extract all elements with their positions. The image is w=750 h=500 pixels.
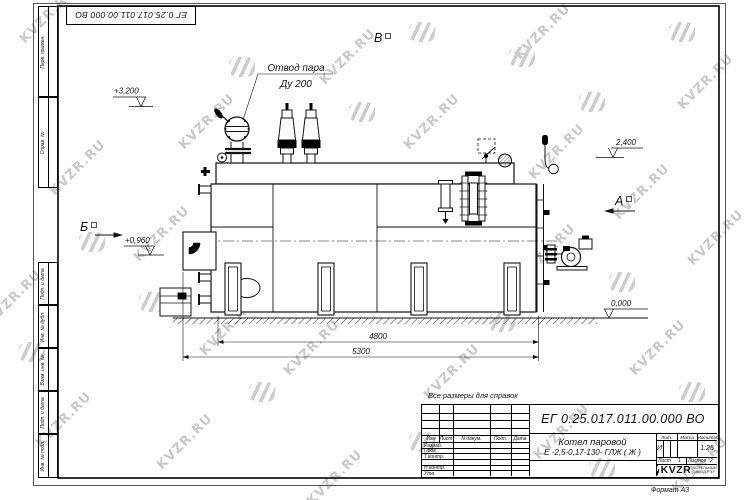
elev-0000-label: 0,000 [611, 299, 632, 308]
product-name-cell: Котел паровой Е -2,5-0,17-130- ГЛЖ ( Ж ) [529, 433, 656, 476]
margin-label: Подп. и дата [40, 268, 46, 299]
view-a-label: А [614, 194, 623, 208]
product-name-line2: Е -2,5-0,17-130- ГЛЖ ( Ж ) [529, 448, 656, 457]
elev-3200-label: +3,200 [114, 87, 139, 96]
margin-block-podp-data-2: Подп. и дата [38, 391, 58, 434]
top-doc-stamp-text: ЕГ 0.25.017.011.00.000 ВО [67, 7, 195, 23]
safety-valves [278, 103, 321, 163]
mass-label: Масса [677, 435, 697, 440]
margin-label: Взам. инв. № [40, 354, 46, 385]
top-doc-stamp: ЕГ 0.25.017.011.00.000 ВО [66, 6, 196, 25]
margin-label: Инв. № подл. [40, 440, 46, 471]
spring-logo-icon [656, 465, 659, 475]
rev-col-ndokum: N докум. [453, 436, 490, 442]
elev-2400-label: 2,400 [615, 138, 637, 147]
view-v-label: В [374, 31, 382, 45]
view-b-label: Б [80, 220, 88, 234]
scale-value: 1:25 [697, 445, 717, 452]
scale-label: Масштаб [697, 435, 717, 440]
elev-0960-label: +0,960 [125, 236, 150, 245]
ground-line [173, 318, 648, 324]
margin-label: Подп. и дата [40, 397, 46, 428]
margin-block-inv-podl: Инв. № подл. [38, 434, 58, 478]
company-subtitle-line2: ЗАВОД РЭУ [693, 470, 717, 474]
drawing-sheet: KVZR.RUKVZR.RUKVZR.RUKVZR.RUKVZR.RUKVZR.… [0, 0, 750, 500]
ladder-and-feed-pump [537, 184, 592, 312]
dim-5300-label: 5300 [352, 347, 370, 356]
margin-label: Перв. примен. [40, 35, 46, 68]
rev-col-izm: Изм [423, 436, 439, 442]
margin-label: Справ. № [40, 131, 46, 154]
rev-col-podp: Подп. [490, 436, 511, 442]
title-block: Изм Лист N докум. Подп. Дата Разраб. Про… [421, 404, 719, 478]
margin-label: Инв. № дубл. [40, 311, 46, 342]
margin-block-vzam-inv: Взам. инв. № [38, 348, 58, 391]
burner-unit [160, 167, 216, 316]
steam-outlet-valve [213, 108, 251, 163]
margin-block-perv-primen: Перв. примен. [38, 6, 58, 97]
steam-callout-line2: Ду 200 [279, 79, 312, 90]
margin-block-inv-dubl: Инв. № дубл. [38, 305, 58, 348]
company-logo-cell: KVZR КОТЕЛЬНЫЙ ЗАВОД РЭУ [656, 464, 717, 476]
reference-note: Все размеры для справок [428, 391, 518, 400]
steam-callout-line1: Отвод пара [267, 63, 325, 74]
sign-row-tkontr: Т.контр. [424, 454, 444, 460]
lit-value: И [656, 445, 663, 452]
sign-row-utv: Утв. [424, 471, 435, 477]
rev-col-list: Лист [439, 436, 453, 442]
company-subtitle: КОТЕЛЬНЫЙ ЗАВОД РЭУ [693, 466, 717, 475]
dim-4800-label: 4800 [369, 332, 387, 341]
rev-col-data: Дата [511, 436, 529, 442]
product-name-line1: Котел паровой [529, 437, 656, 448]
company-name: KVZR [661, 464, 692, 476]
format-note: Формат А3 [630, 487, 710, 494]
doc-number: ЕГ 0.25.017.011.00.000 ВО [529, 405, 717, 433]
lit-label: Лит. [656, 435, 677, 440]
margin-block-podp-data-1: Подп. и дата [38, 262, 58, 305]
margin-block-sprav-no: Справ. № [38, 97, 58, 188]
